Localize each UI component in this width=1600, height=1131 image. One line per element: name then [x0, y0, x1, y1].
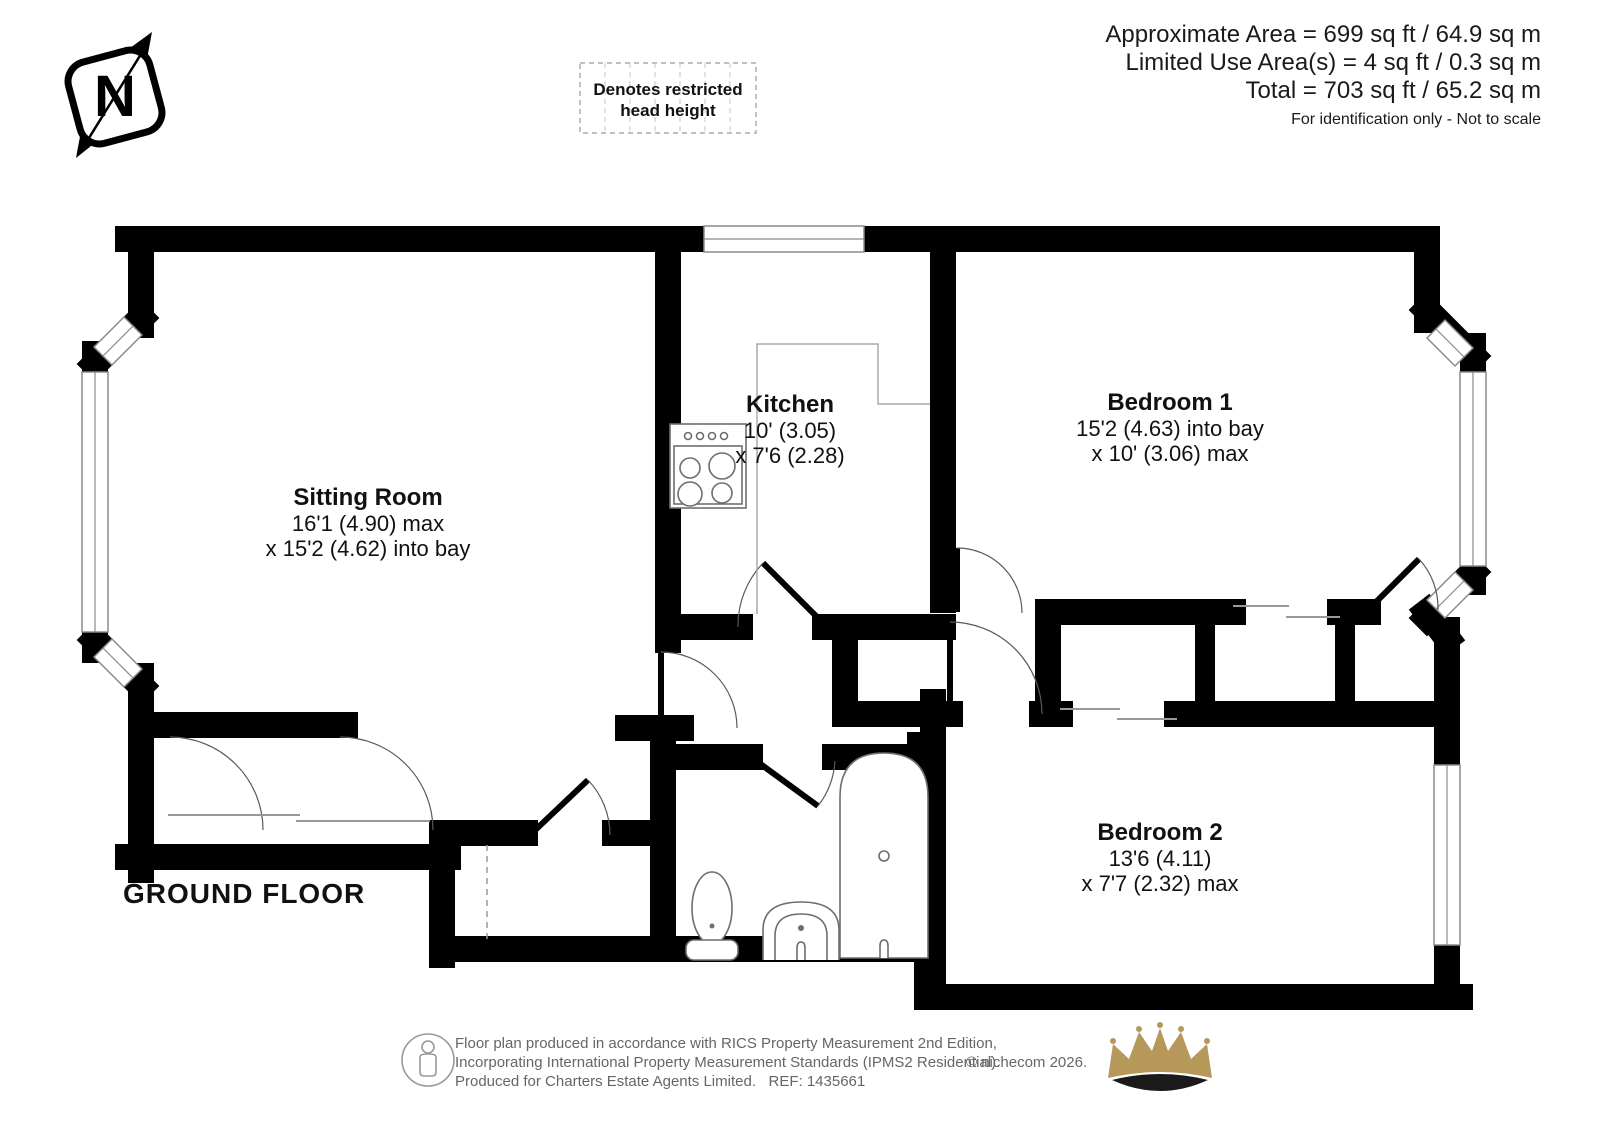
sitting-room-bay-window: [82, 317, 142, 687]
restricted-height-legend: Denotes restricted head height: [580, 63, 756, 133]
bathtub-icon: [840, 753, 928, 958]
bedroom2-name: Bedroom 2: [1097, 819, 1222, 846]
footer-line2: Incorporating International Property Mea…: [455, 1054, 1000, 1071]
storage-door: [530, 780, 610, 835]
footer: Floor plan produced in accordance with R…: [402, 1022, 1212, 1091]
footer-line3: Produced for Charters Estate Agents Limi…: [455, 1073, 865, 1090]
toilet-icon: [686, 872, 738, 960]
bedroom1-dim1: 15'2 (4.63) into bay: [1076, 416, 1264, 441]
hall-corridor-door: [957, 548, 1022, 613]
entrance-door-left: [170, 737, 263, 830]
sink-icon: [763, 902, 839, 960]
bedroom1-label: Bedroom 1 15'2 (4.63) into bay x 10' (3.…: [1076, 389, 1264, 466]
bedroom2-dim1: 13'6 (4.11): [1109, 846, 1212, 871]
sitting-room-dim2: x 15'2 (4.62) into bay: [266, 536, 471, 561]
doors: [168, 548, 1438, 835]
approximate-area-text: Approximate Area = 699 sq ft / 64.9 sq m: [1105, 21, 1541, 48]
bathroom-fixtures: [686, 753, 928, 960]
crown-logo-icon: [1108, 1022, 1212, 1091]
sitting-room-dim1: 16'1 (4.90) max: [292, 511, 444, 536]
limited-use-area-text: Limited Use Area(s) = 4 sq ft / 0.3 sq m: [1126, 49, 1542, 76]
footer-line1: Floor plan produced in accordance with R…: [455, 1035, 997, 1052]
bedroom2-label: Bedroom 2 13'6 (4.11) x 7'7 (2.32) max: [1081, 819, 1238, 896]
sitting-room-label: Sitting Room 16'1 (4.90) max x 15'2 (4.6…: [266, 484, 471, 561]
legend-text-line1: Denotes restricted: [593, 80, 742, 99]
floor-label: GROUND FLOOR: [123, 878, 365, 909]
bedroom1-name: Bedroom 1: [1107, 389, 1232, 416]
bedroom2-door: [950, 622, 1042, 714]
kitchen-label: Kitchen 10' (3.05) x 7'6 (2.28): [735, 391, 844, 468]
total-area-text: Total = 703 sq ft / 65.2 sq m: [1246, 77, 1542, 104]
bedroom1-dim2: x 10' (3.06) max: [1091, 441, 1248, 466]
kitchen-window: [704, 226, 864, 252]
compass-arrowhead-icon: [130, 32, 152, 59]
bedroom2-window: [1434, 765, 1460, 945]
kitchen-name: Kitchen: [746, 391, 834, 418]
person-icon: [402, 1034, 454, 1086]
sitting-room-name: Sitting Room: [293, 484, 442, 511]
compass: N: [64, 32, 167, 158]
nichecom-copyright: © nichecom 2026.: [966, 1054, 1087, 1071]
area-summary: Approximate Area = 699 sq ft / 64.9 sq m…: [1105, 21, 1541, 128]
floorplan-canvas: N Denotes restricted head height Approxi…: [0, 0, 1600, 1131]
floorplan-page: { "compass": { "letter": "N" }, "legend"…: [0, 0, 1600, 1131]
kitchen-dim1: 10' (3.05): [744, 418, 836, 443]
legend-text-line2: head height: [620, 101, 716, 120]
kitchen-fixtures: [670, 344, 930, 614]
kitchen-dim2: x 7'6 (2.28): [735, 443, 844, 468]
bedroom2-dim2: x 7'7 (2.32) max: [1081, 871, 1238, 896]
kitchen-counter: [757, 344, 930, 614]
identification-note: For identification only - Not to scale: [1291, 111, 1541, 128]
entrance-door-right: [340, 737, 433, 830]
